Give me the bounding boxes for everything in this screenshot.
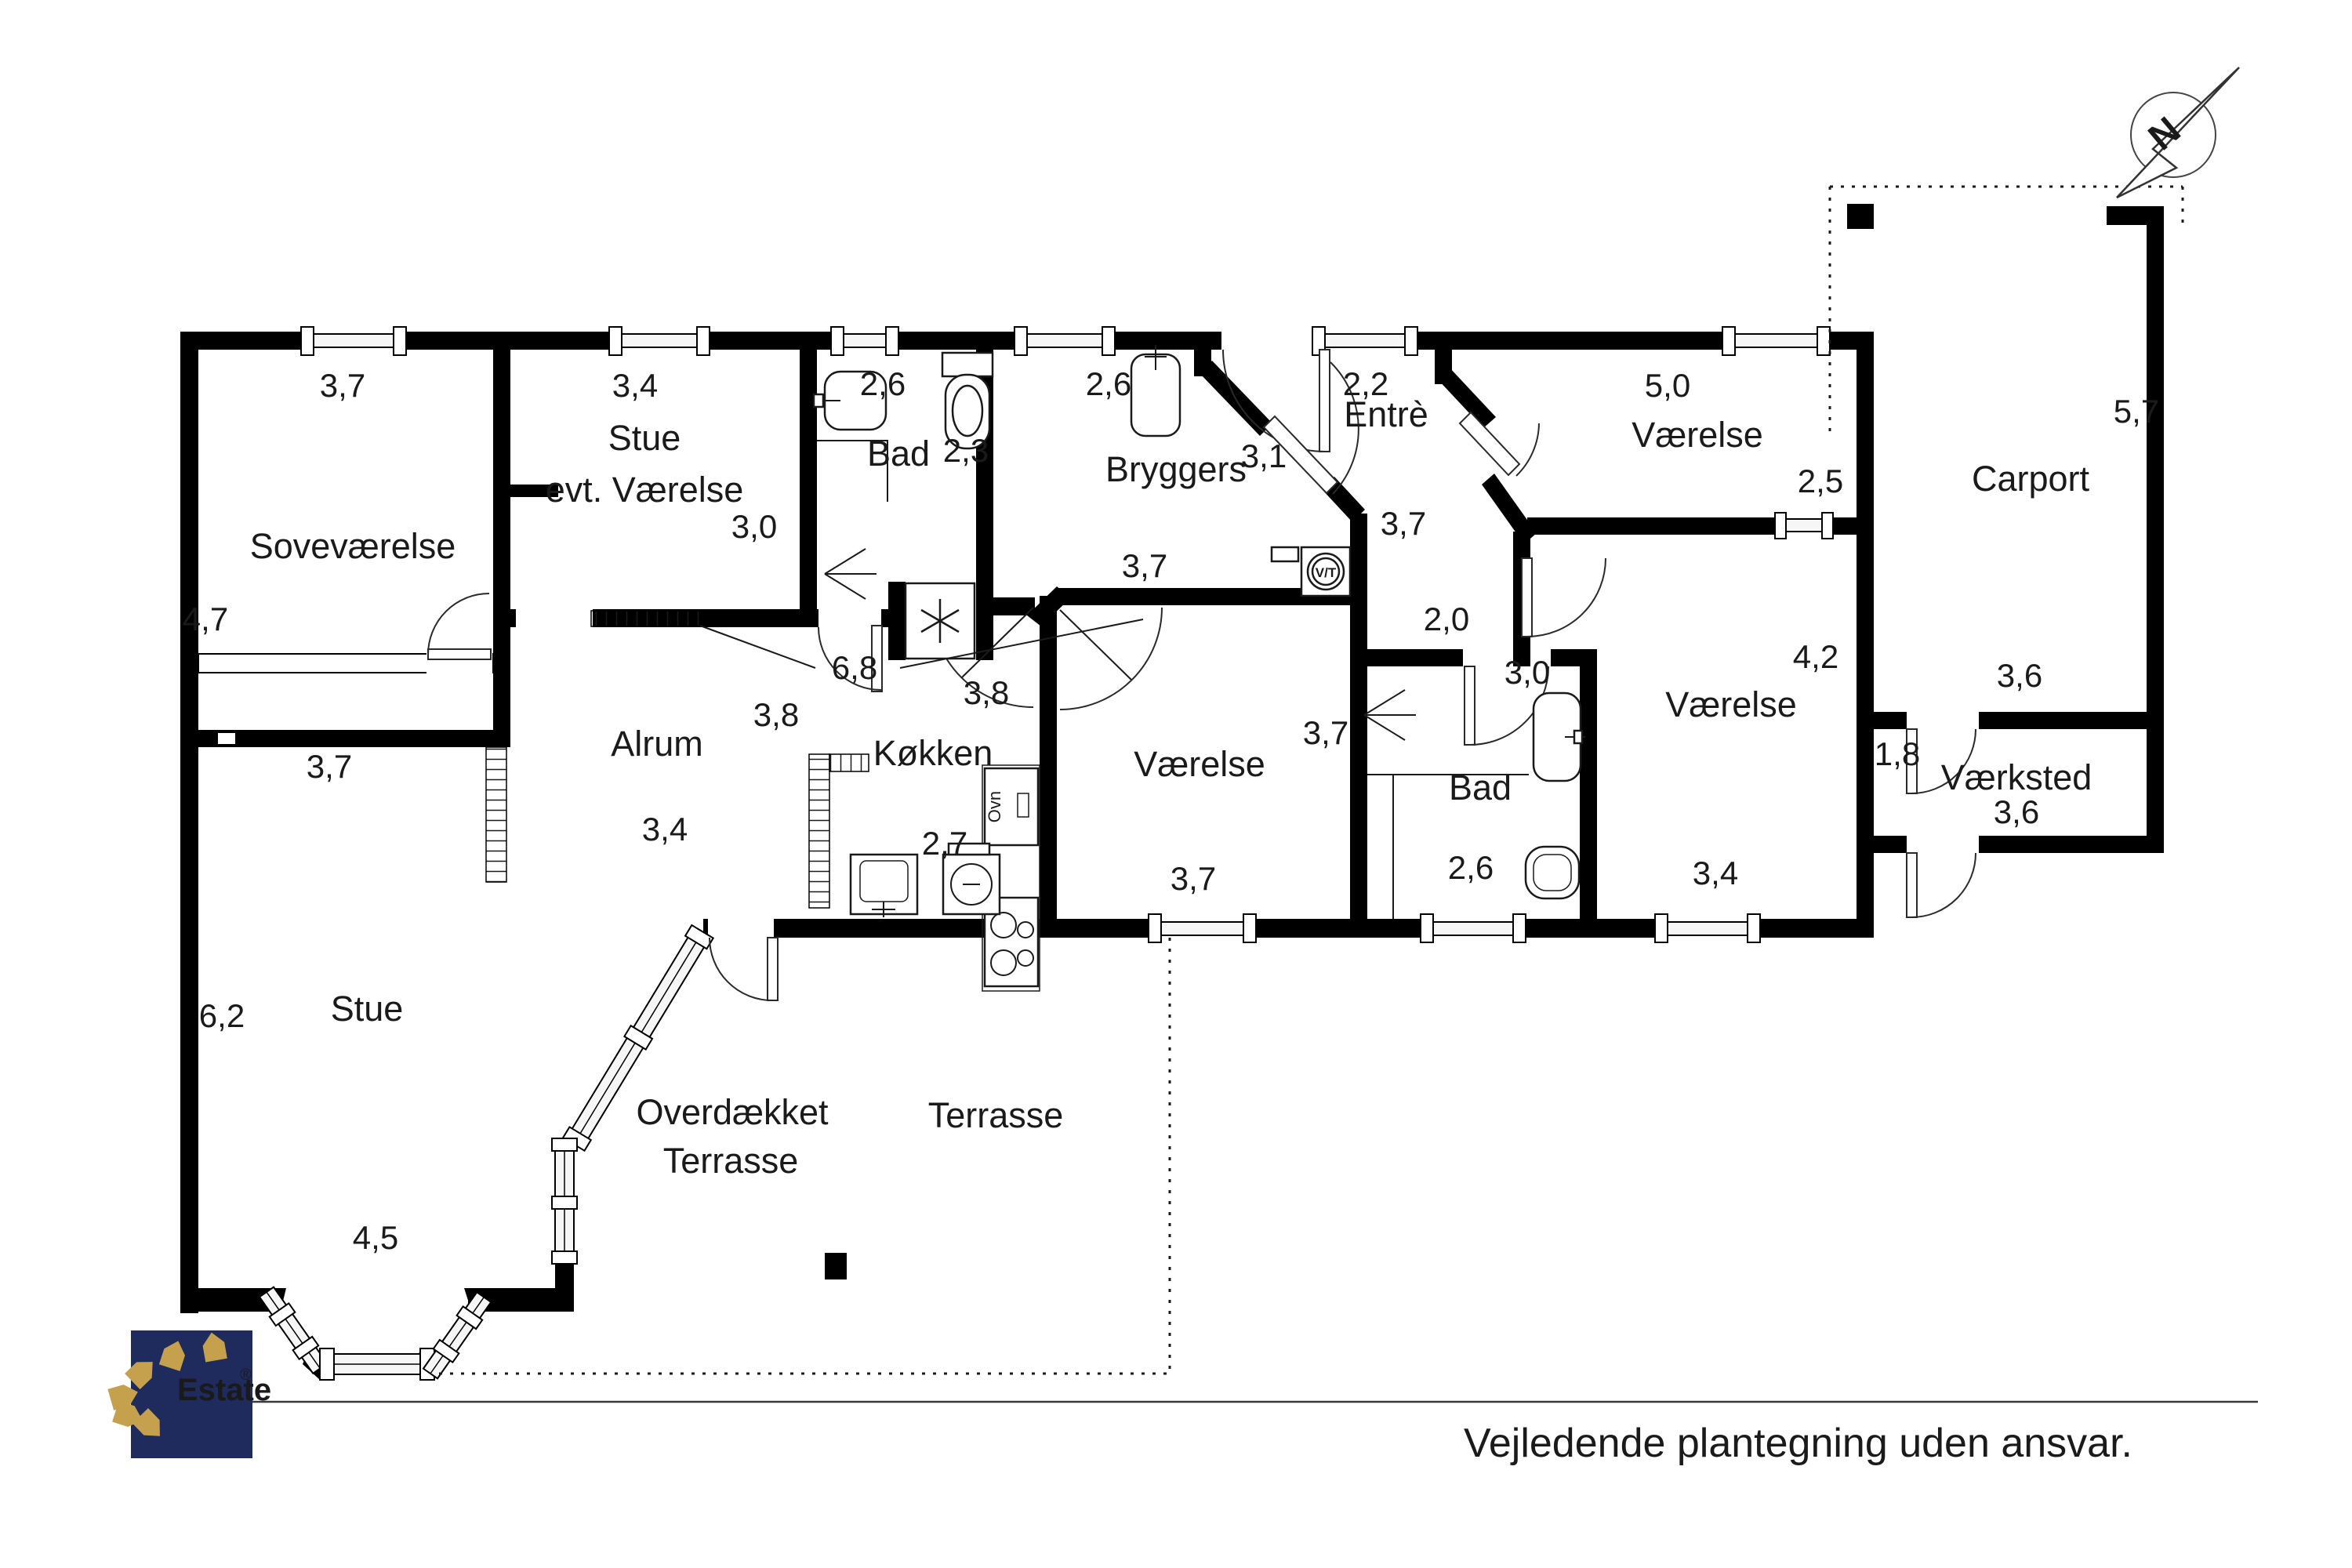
window-vaerelse-no bbox=[1722, 327, 1830, 355]
wall-bad-oest-top-a bbox=[1367, 649, 1463, 666]
dimension-label-1: 3,4 bbox=[612, 367, 658, 404]
dimension-label-26: 3,7 bbox=[1171, 860, 1216, 897]
dimension-label-23: 3,7 bbox=[1303, 714, 1348, 751]
dimension-label-10: 3,1 bbox=[1241, 437, 1287, 474]
wall-sove-stueevt bbox=[493, 350, 510, 747]
dimension-label-15: 3,8 bbox=[753, 696, 799, 733]
dimension-label-21: 1,8 bbox=[1875, 735, 1920, 772]
room-label-vaerelse-midt: Værelse bbox=[1134, 744, 1265, 784]
dimension-label-3: 2,6 bbox=[1086, 365, 1131, 402]
dimension-label-0: 3,7 bbox=[320, 367, 365, 404]
oven-label: Ovn bbox=[985, 791, 1004, 822]
wall-carport-hook bbox=[2107, 206, 2164, 225]
window-vaerelse-soe-s bbox=[1655, 914, 1760, 942]
dimension-label-2: 2,6 bbox=[860, 365, 906, 402]
washer-label: V/T bbox=[1316, 565, 1337, 580]
wall-bad-oest-top-b bbox=[1551, 649, 1580, 666]
oven: Ovn bbox=[985, 768, 1038, 845]
wall-koekken-vaerelse bbox=[1040, 596, 1057, 919]
wall-bryggers-bottom bbox=[976, 597, 1035, 615]
room-label-sovevaerelse: Soveværelse bbox=[250, 526, 456, 566]
wall-stue-bottom bbox=[180, 1288, 272, 1312]
opening-terrace-door bbox=[708, 916, 774, 941]
kitchen-sink bbox=[851, 855, 917, 917]
dimension-label-29: 3,6 bbox=[1994, 793, 2039, 830]
room-label-bad-oest: Bad bbox=[1449, 768, 1512, 808]
wardrobe-alrum bbox=[486, 747, 506, 882]
sink-bryggers bbox=[1131, 345, 1180, 436]
room-label-vaerelse-soe: Værelse bbox=[1665, 684, 1797, 724]
carport-post bbox=[1847, 204, 1874, 229]
room-label-overdaekket-2: Terrasse bbox=[663, 1141, 799, 1181]
room-label-vaerksted: Værksted bbox=[1941, 757, 2092, 797]
dimension-label-7: 4,7 bbox=[183, 601, 228, 637]
room-label-overdaekket-1: Overdækket bbox=[636, 1092, 829, 1132]
opening-stueevt bbox=[516, 606, 593, 630]
room-label-stue-evt-1: Stue bbox=[608, 418, 681, 458]
window-bay-front bbox=[320, 1348, 434, 1380]
dimension-label-28: 3,4 bbox=[1693, 855, 1738, 891]
window-vaerelse-midt-s bbox=[1149, 914, 1256, 942]
dimension-label-12: 2,5 bbox=[1798, 463, 1843, 499]
terrace-post bbox=[825, 1253, 847, 1279]
dimension-label-13: 3,7 bbox=[307, 748, 352, 785]
wall-carport-east bbox=[2147, 206, 2164, 853]
window-stue-vertical bbox=[552, 1138, 577, 1264]
dimension-label-18: 3,0 bbox=[1504, 654, 1550, 691]
dimension-label-19: 4,2 bbox=[1793, 638, 1838, 675]
dimension-label-4: 2,2 bbox=[1343, 365, 1388, 402]
dimension-label-6: 5,7 bbox=[2114, 393, 2159, 430]
window-bad-vest bbox=[831, 327, 898, 355]
room-label-carport: Carport bbox=[1972, 459, 2090, 499]
dimension-label-16: 3,8 bbox=[964, 674, 1009, 711]
wall-west bbox=[180, 332, 198, 1313]
opening-front-door bbox=[1221, 328, 1327, 353]
room-label-stue-evt-2: evt. Værelse bbox=[546, 470, 744, 510]
sink-bad-oest bbox=[1534, 693, 1585, 781]
dimension-label-30: 6,2 bbox=[199, 997, 245, 1034]
kitchen-island bbox=[809, 754, 829, 908]
wall-stueevt-bad bbox=[800, 350, 817, 627]
dimension-label-25: 3,4 bbox=[642, 811, 688, 848]
opening-stue-notch bbox=[218, 733, 235, 744]
dimension-label-11: 3,7 bbox=[1381, 505, 1426, 542]
footer-disclaimer: Vejledende plantegning uden ansvar. bbox=[1464, 1421, 2132, 1466]
dimension-label-14: 6,8 bbox=[832, 649, 877, 686]
room-label-bryggers: Bryggers bbox=[1105, 449, 1247, 489]
freezer bbox=[906, 583, 975, 659]
wall-freezer-stub bbox=[888, 582, 906, 660]
kitchen-island-end bbox=[829, 754, 869, 771]
dimension-label-27: 2,6 bbox=[1448, 849, 1494, 886]
wall-bay-stub bbox=[555, 1264, 574, 1291]
window-stueevt bbox=[609, 327, 710, 355]
window-vaerelse-divider bbox=[1775, 513, 1833, 539]
room-label-terrasse: Terrasse bbox=[928, 1095, 1064, 1135]
dimension-label-9: 2,3 bbox=[943, 432, 989, 469]
window-bad-oest-s bbox=[1421, 914, 1526, 942]
room-label-koekken: Køkken bbox=[873, 733, 993, 773]
dimension-label-31: 4,5 bbox=[353, 1219, 398, 1256]
dimension-label-24: 2,7 bbox=[922, 825, 967, 862]
dimension-label-5: 5,0 bbox=[1645, 367, 1690, 404]
dimension-label-20: 3,6 bbox=[1997, 657, 2042, 694]
window-sovevaerelse bbox=[301, 327, 406, 355]
window-bryggers bbox=[1014, 327, 1115, 355]
room-label-vaerelse-no: Værelse bbox=[1632, 415, 1763, 455]
wall-east bbox=[1857, 332, 1874, 938]
wardrobe-stueevt bbox=[591, 611, 703, 626]
dimension-label-8: 3,0 bbox=[731, 508, 777, 545]
floor-plan: V/T Ovn bbox=[0, 0, 2352, 1568]
toilet-bad-oest bbox=[1526, 847, 1579, 898]
estate-logo: Estate ® bbox=[107, 1330, 271, 1458]
logo-registered-mark: ® bbox=[240, 1367, 252, 1384]
dimension-label-17: 2,0 bbox=[1424, 601, 1469, 637]
room-label-alrum: Alrum bbox=[611, 724, 703, 764]
dimension-label-22: 3,7 bbox=[1122, 547, 1167, 584]
room-label-stue-sv: Stue bbox=[331, 989, 404, 1029]
wall-bad-oest-east bbox=[1580, 649, 1597, 919]
room-label-bad-vest: Bad bbox=[867, 434, 930, 474]
